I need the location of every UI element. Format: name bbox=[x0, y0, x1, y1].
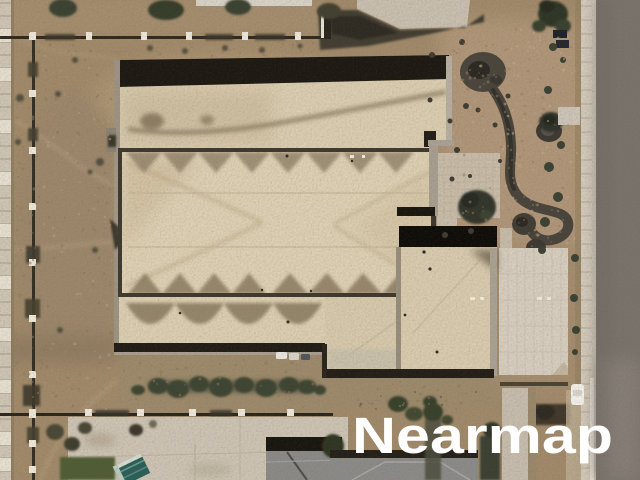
svg-text:Nearmap: Nearmap bbox=[352, 407, 613, 464]
